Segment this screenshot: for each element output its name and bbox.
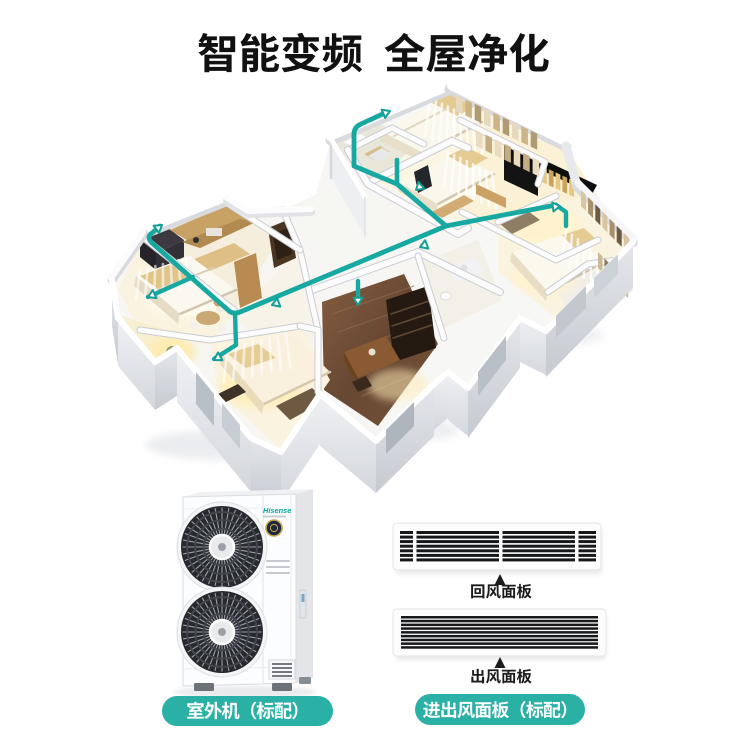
- svg-text:Hisense: Hisense: [263, 506, 291, 515]
